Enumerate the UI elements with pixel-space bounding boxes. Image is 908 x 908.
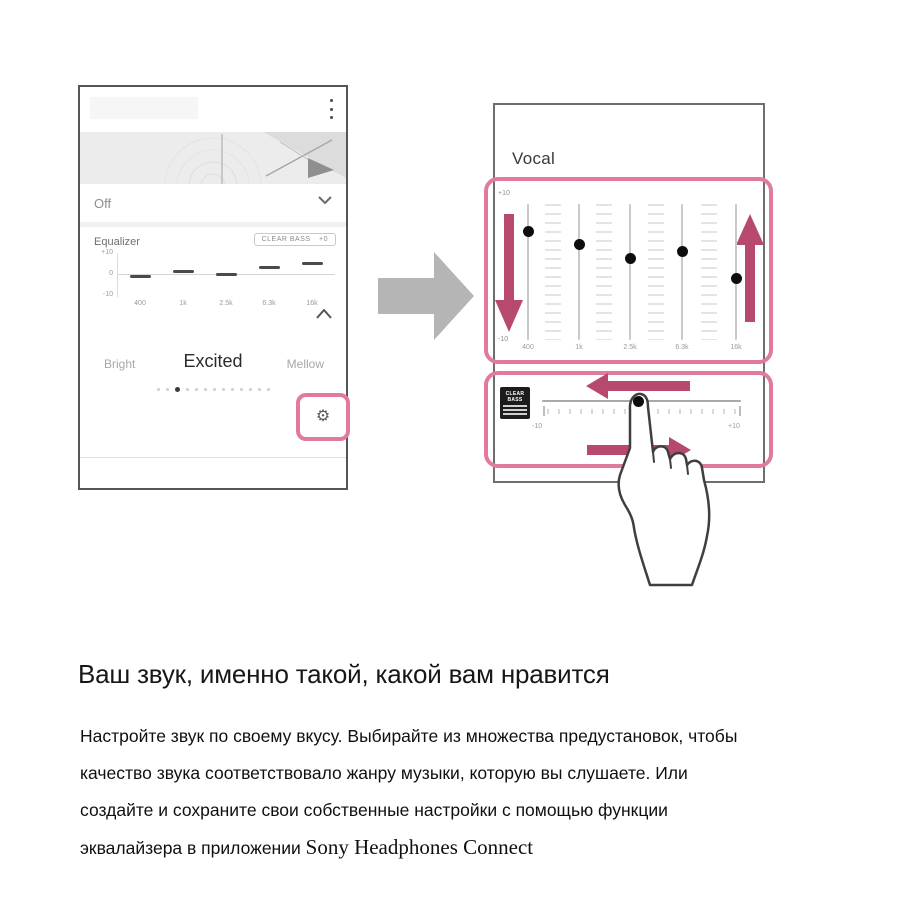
pagination-dot[interactable] [204,388,207,391]
pagination-dot[interactable] [222,388,225,391]
eq-slider-track[interactable] [578,204,580,340]
gear-icon[interactable]: ⚙ [316,409,330,425]
eq-band-label: 2.5k [613,344,647,351]
clear-bass-badge-line2: BASS [507,398,522,404]
caption-line: качество звука соответствовало жанру муз… [80,755,770,792]
clear-bass-button[interactable]: CLEAR BASS +0 [254,233,336,246]
swipe-up-arrow-icon [732,214,768,324]
eq-chart-bar [130,275,151,278]
clear-bass-button-value: +0 [319,236,328,243]
eq-tick-column [596,204,612,340]
caption-line: создайте и сохраните свои собственные на… [80,792,770,829]
caption-line-text: эквалайзера в приложении [80,838,306,858]
sound-mode-dropdown[interactable]: Off [80,184,346,222]
pagination-dot[interactable] [249,388,252,391]
pagination-dot[interactable] [157,388,160,391]
pagination-dot[interactable] [195,388,198,391]
faded-title-block [90,97,198,119]
eq-chart-bar [302,262,323,265]
pagination-dot[interactable] [213,388,216,391]
app-name: Sony Headphones Connect [306,835,533,859]
transition-arrow-icon [378,252,474,340]
eq-slider-track[interactable] [629,204,631,340]
eq-band-label: 16k [719,344,753,351]
preset-carousel: Bright Excited Mellow [80,349,346,377]
pointing-hand-illustration [592,388,742,588]
chevron-down-icon [318,196,332,205]
eq-chart-band-label: 2.5k [211,300,241,307]
chevron-up-icon[interactable] [316,309,332,319]
clear-bass-slider-handle[interactable] [633,396,644,407]
y-tick-zero: 0 [93,270,113,277]
eq-sliders-highlight-box: +10 -10 4001k2.5k6.3k16k [484,177,773,364]
soundscape-banner-image [80,132,346,184]
y-tick-plus10: +10 [93,249,113,256]
caption-heading: Ваш звук, именно такой, какой вам нравит… [78,659,610,690]
eq-chart-band-label: 6.3k [254,300,284,307]
caption-body: Настройте звук по своему вкусу. Выбирайт… [80,718,770,867]
preset-next[interactable]: Mellow [287,357,324,371]
clear-bass-min-label: -10 [532,423,542,430]
equalizer-header: Equalizer CLEAR BASS +0 [80,227,346,253]
eq-bottom-label: -10 [498,336,508,343]
settings-highlight-box: ⚙ [296,393,350,441]
eq-tick-column [701,204,717,340]
eq-slider-track[interactable] [681,204,683,340]
eq-band-label: 400 [511,344,545,351]
app-header [80,87,346,132]
eq-band-label: 1k [562,344,596,351]
pagination-dot[interactable] [186,388,189,391]
eq-slider-handle[interactable] [625,253,636,264]
caption-line: Настройте звук по своему вкусу. Выбирайт… [80,718,770,755]
pagination-dot[interactable] [175,387,180,392]
y-tick-minus10: -10 [93,291,113,298]
banner-graphic [80,132,346,184]
pagination-dot[interactable] [267,388,270,391]
phone-screenshot-panel: Off Equalizer CLEAR BASS +0 +10 0 -10 40… [78,85,348,490]
chart-y-axis [117,253,118,297]
eq-slider-handle[interactable] [677,246,688,257]
eq-chart-bar [173,270,194,273]
eq-slider-handle[interactable] [731,273,742,284]
pagination-dot[interactable] [240,388,243,391]
eq-slider-track[interactable] [735,204,737,340]
pagination-dot[interactable] [258,388,261,391]
eq-slider-handle[interactable] [574,239,585,250]
eq-chart-bar [216,273,237,276]
eq-band-label: 6.3k [665,344,699,351]
eq-slider-track[interactable] [527,204,529,340]
eq-tick-column [545,204,561,340]
overflow-menu-icon[interactable] [330,99,334,119]
eq-slider-handle[interactable] [523,226,534,237]
caption-last-line: эквалайзера в приложении Sony Headphones… [80,829,770,867]
pagination-dot[interactable] [166,388,169,391]
preset-name-label: Vocal [512,149,555,169]
eq-chart-bar [259,266,280,269]
clear-bass-badge: CLEAR BASS [500,387,530,419]
card-bottom-divider [80,457,346,458]
clear-bass-button-label: CLEAR BASS [262,236,311,243]
pagination-dot[interactable] [231,388,234,391]
eq-chart-band-label: 1k [168,300,198,307]
eq-tick-column [648,204,664,340]
badge-stripes [503,405,527,415]
equalizer-title: Equalizer [94,236,140,248]
swipe-down-arrow-icon [491,214,527,334]
sound-mode-value: Off [94,196,111,211]
eq-chart-band-label: 16k [297,300,327,307]
preset-pagination-dots [80,387,346,392]
eq-top-label: +10 [498,190,510,197]
clear-bass-min-tick [543,406,545,416]
eq-chart-band-label: 400 [125,300,155,307]
equalizer-mini-chart: +10 0 -10 4001k2.5k6.3k16k [117,253,335,297]
